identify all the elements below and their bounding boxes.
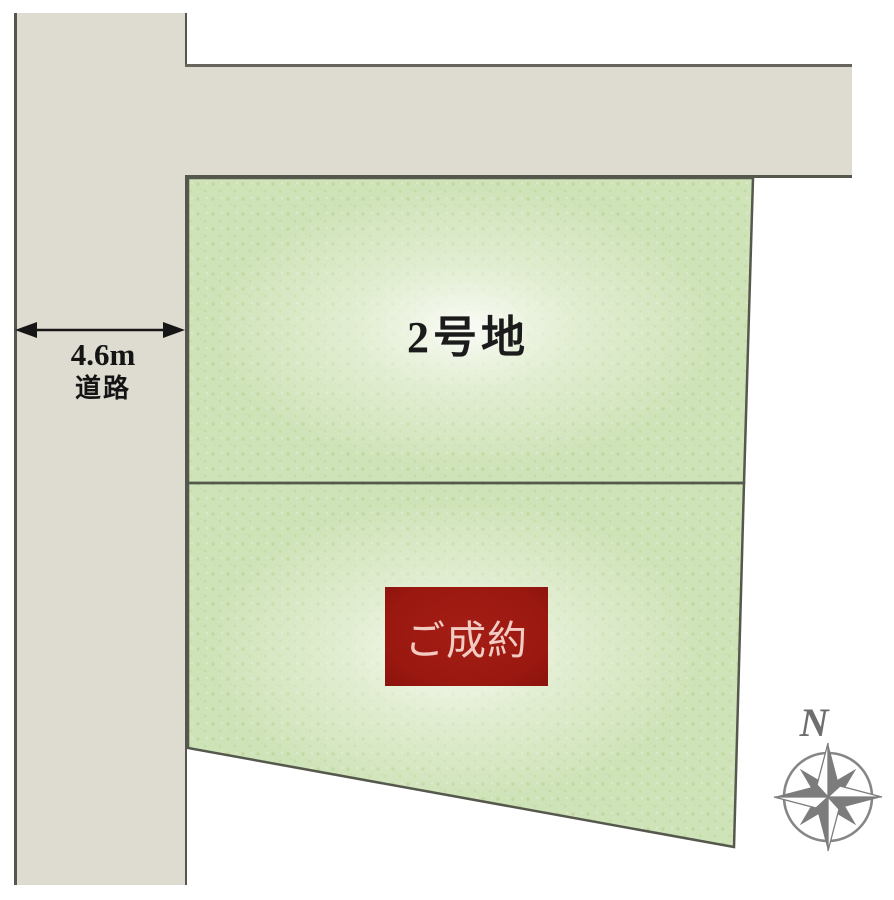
- compass-north-label: N: [799, 700, 831, 745]
- road-type-label: 道路: [48, 374, 158, 405]
- lot-areas: [180, 170, 764, 860]
- road-width-value: 4.6m: [48, 337, 158, 374]
- sold-badge: ご成約: [385, 587, 548, 686]
- road-horizontal: [185, 64, 852, 178]
- lot-2-label: 2号地: [352, 301, 584, 365]
- compass-rose-icon: N: [765, 698, 891, 863]
- lot-map: 2号地 ご成約 4.6m 道路 N: [0, 0, 894, 900]
- road-vertical: [14, 13, 187, 885]
- road-width-label: 4.6m 道路: [48, 337, 158, 404]
